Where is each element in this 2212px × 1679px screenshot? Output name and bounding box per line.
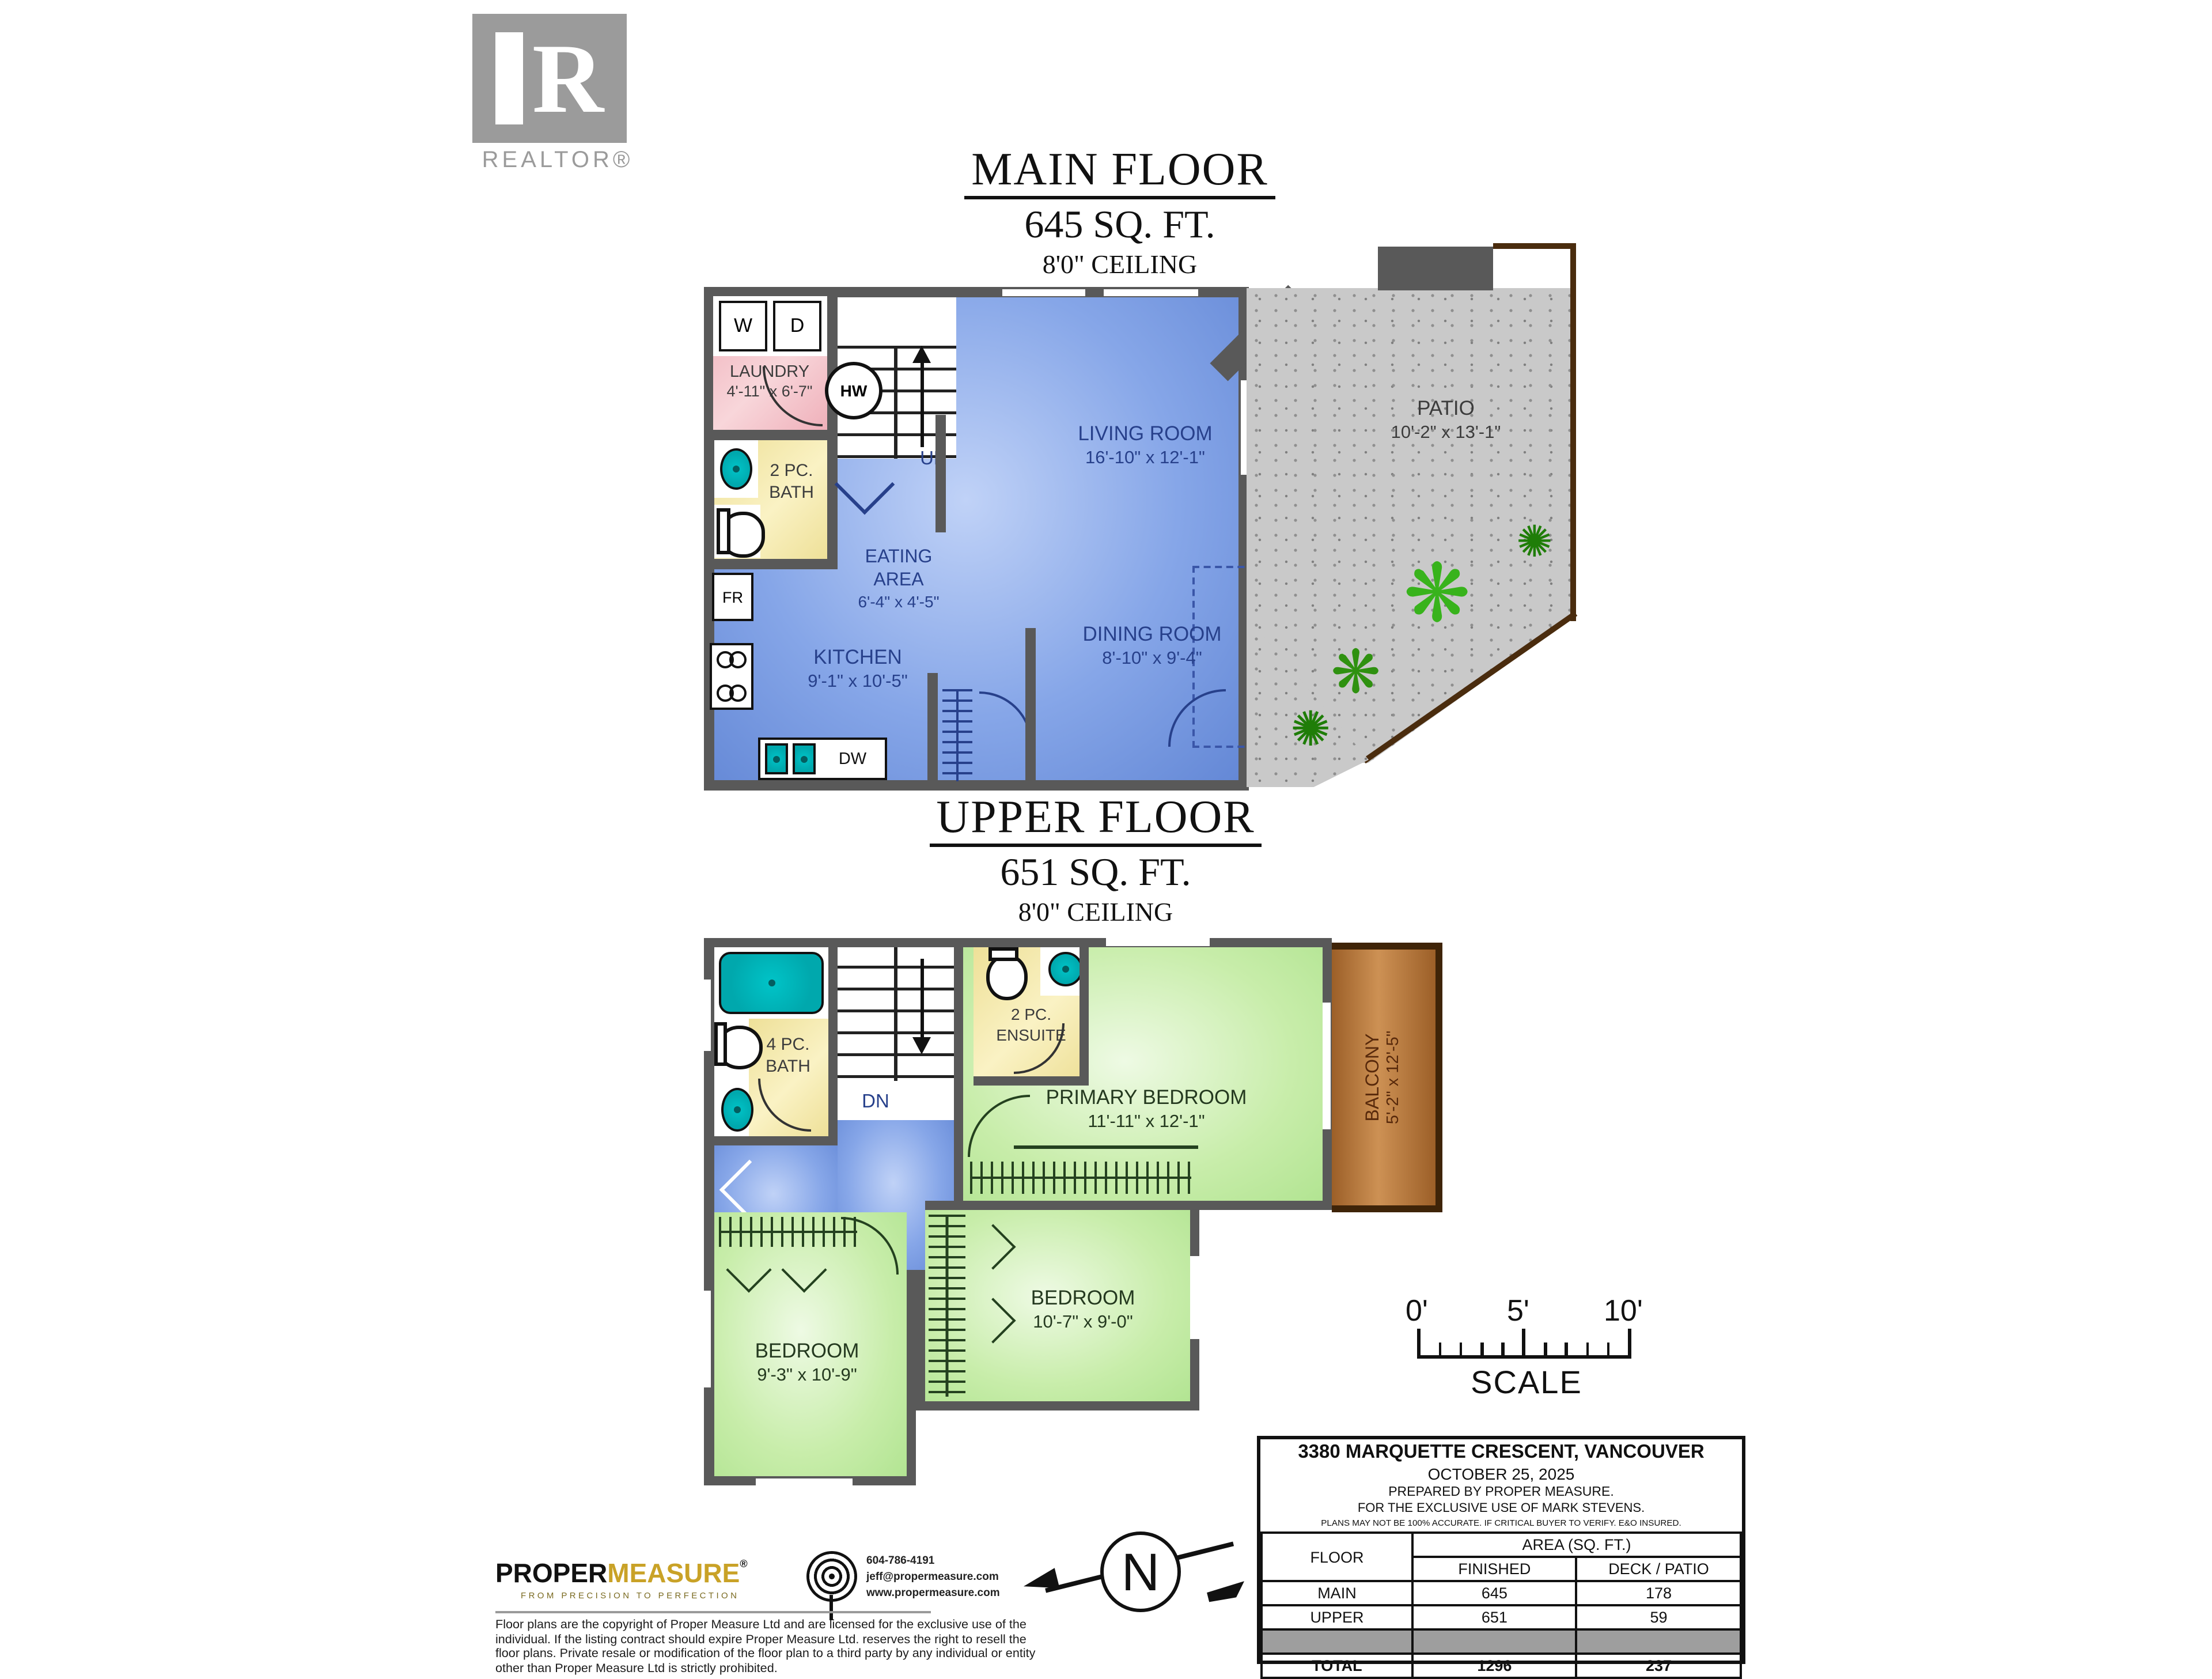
bedroom1-dims: 9'-3" x 10'-9" [712, 1364, 902, 1387]
primary-name: PRIMARY BEDROOM [1025, 1086, 1267, 1111]
primary-bedroom-label: PRIMARY BEDROOM 11'-11" x 12'-1" [1025, 1086, 1267, 1133]
toilet-tank-icon [988, 947, 1018, 961]
balcony: BALCONY 5'-2" x 12'-5" [1332, 943, 1442, 1212]
col-deck: DECK / PATIO [1577, 1557, 1741, 1581]
logo-proper: PROPER [495, 1558, 607, 1588]
logo-registered: ® [740, 1558, 747, 1570]
date: OCTOBER 25, 2025 [1260, 1465, 1742, 1483]
wall [713, 430, 838, 440]
upper-bath-line2: BATH [747, 1057, 829, 1079]
wall [827, 296, 838, 559]
upper-floor-title: UPPER FLOOR 651 SQ. FT. 8'0" CEILING [923, 793, 1268, 928]
dining-name: DINING ROOM [1037, 622, 1267, 648]
kitchen-name: KITCHEN [774, 645, 941, 671]
area-table: FLOOR AREA (SQ. FT.) FINISHED DECK / PAT… [1260, 1531, 1742, 1679]
eating-dims: 6'-4" x 4'-5" [841, 592, 956, 612]
ruler-tick [1438, 1343, 1441, 1355]
main-floor-ceiling: 8'0" CEILING [947, 250, 1293, 280]
cell-deck: 59 [1577, 1605, 1741, 1629]
down-arrow-line [921, 959, 924, 1039]
cell-total-label: TOTAL [1262, 1654, 1412, 1678]
logo-measure: MEASURE [607, 1558, 740, 1588]
website: www.propermeasure.com [866, 1586, 1000, 1602]
living-room-label: LIVING ROOM 16'-10" x 12'-1" [1030, 422, 1260, 470]
main-stairs-divider [894, 346, 897, 459]
ruler-tick [1544, 1343, 1547, 1355]
scale-tick-5: 5' [1507, 1293, 1529, 1329]
dishwasher-label-box: DW [820, 740, 885, 778]
email: jeff@propermeasure.com [866, 1570, 1000, 1586]
up-label: UP [899, 447, 968, 471]
cell-finished: 651 [1412, 1605, 1577, 1629]
window [704, 980, 711, 1051]
col-finished: FINISHED [1412, 1557, 1577, 1581]
propermeasure-logo: PROPERMEASURE® [495, 1558, 748, 1589]
info-box: 3380 MARQUETTE CRESCENT, VANCOUVER OCTOB… [1257, 1436, 1745, 1664]
dn-label: DN [841, 1090, 910, 1114]
toilet-tank-icon [714, 1022, 727, 1066]
dining-room-label: DINING ROOM 8'-10" x 9'-4" [1037, 622, 1267, 670]
realtor-logo-r: R [532, 32, 604, 124]
main-bath-line1: 2 PC. [751, 461, 832, 483]
living-dims: 16'-10" x 12'-1" [1030, 447, 1260, 470]
toilet-tank-icon [717, 508, 730, 554]
realtor-logo-bar [495, 32, 523, 124]
bedroom2-name: BEDROOM [985, 1286, 1181, 1311]
cell-finished: 645 [1412, 1581, 1577, 1605]
upper-bath-line1: 4 PC. [747, 1035, 829, 1057]
living-name: LIVING ROOM [1030, 422, 1260, 447]
col-area: AREA (SQ. FT.) [1412, 1533, 1741, 1557]
exclusive-use: FOR THE EXCLUSIVE USE OF MARK STEVENS. [1260, 1502, 1742, 1515]
upper-floor-area: 651 SQ. FT. [923, 852, 1268, 895]
upper-floor-title-text: UPPER FLOOR [929, 793, 1262, 847]
realtor-logo-icon: R [472, 14, 627, 143]
up-arrow-head [912, 346, 931, 363]
target-icon [806, 1551, 857, 1602]
cell-deck: 178 [1577, 1581, 1741, 1605]
bedroom2-closet-hatch [929, 1215, 965, 1397]
primary-closet-hatch [970, 1162, 1191, 1194]
main-bath-line2: BATH [751, 483, 832, 505]
ruler-tick [1565, 1343, 1568, 1355]
washer-icon: W [719, 301, 767, 351]
down-arrow-head [912, 1037, 931, 1054]
cell-floor: MAIN [1262, 1581, 1412, 1605]
kitchen-sink-icon [793, 743, 816, 774]
north-arrow-tail [1206, 1581, 1248, 1604]
plant-icon: ❋ [1403, 553, 1471, 634]
hw-label: HW [840, 381, 868, 400]
eating-wall-stub [935, 415, 946, 532]
patio-upper-wall [1378, 247, 1493, 290]
plant-icon: ✺ [1516, 521, 1553, 565]
logo-tagline: FROM PRECISION TO PERFECTION [521, 1590, 739, 1601]
north-compass: N [1100, 1531, 1181, 1612]
wall [714, 1136, 838, 1145]
upper-stairs-divider [894, 947, 897, 1081]
washer-label: W [734, 315, 752, 338]
burner-icon [729, 651, 747, 668]
realtor-wordmark: REALTOR® [465, 148, 650, 174]
spacer-cell [1412, 1629, 1577, 1654]
spacer-cell [1577, 1629, 1741, 1654]
patio-fence-right [1570, 243, 1576, 621]
eating-line1: EATING [841, 546, 956, 569]
dryer-label: D [790, 315, 805, 338]
plant-icon: ❋ [1331, 643, 1381, 703]
scale-label: SCALE [1429, 1364, 1624, 1401]
balcony-door-window [1323, 1003, 1331, 1129]
kitchen-sink-icon [765, 743, 788, 774]
north-label: N [1122, 1541, 1160, 1603]
balcony-name: BALCONY [1364, 1031, 1385, 1124]
burner-icon [729, 685, 747, 702]
bathtub-icon [719, 952, 824, 1014]
bedroom1-label: BEDROOM 9'-3" x 10'-9" [712, 1339, 902, 1387]
north-arrow-head [1021, 1568, 1060, 1596]
wall [925, 1201, 1323, 1210]
fridge-icon: FR [712, 573, 753, 621]
up-arrow-line [921, 360, 924, 447]
ruler-tick [1628, 1329, 1631, 1355]
wall [974, 1076, 1089, 1086]
bedroom2-dims: 10'-7" x 9'-0" [985, 1311, 1181, 1334]
spacer-cell [1262, 1629, 1412, 1654]
dining-dims: 8'-10" x 9'-4" [1037, 648, 1267, 670]
eating-area-label: EATING AREA 6'-4" x 4'-5" [841, 546, 956, 612]
scale-tick-0: 0' [1406, 1293, 1428, 1329]
main-floor-title-text: MAIN FLOOR [964, 145, 1275, 199]
main-floor-title: MAIN FLOOR 645 SQ. FT. 8'0" CEILING [947, 145, 1293, 280]
closet-rod-line [1014, 1145, 1198, 1148]
wall [954, 947, 963, 1201]
kitchen-label: KITCHEN 9'-1" x 10'-5" [774, 645, 941, 693]
toilet-icon [986, 954, 1028, 1000]
upper-floor-ceiling: 8'0" CEILING [923, 898, 1268, 928]
window [1190, 1256, 1199, 1339]
table-total-row: TOTAL 1296 237 [1262, 1654, 1741, 1678]
copyright-text: Floor plans are the copyright of Proper … [495, 1618, 1053, 1676]
balcony-label: BALCONY 5'-2" x 12'-5" [1364, 1031, 1403, 1124]
sink-icon [721, 1088, 753, 1132]
footer-divider [495, 1611, 931, 1613]
scale-tick-10: 10' [1604, 1293, 1643, 1329]
bedroom2-label: BEDROOM 10'-7" x 9'-0" [985, 1286, 1181, 1334]
sink-icon [720, 448, 752, 490]
floorplan-page: R REALTOR® MAIN FLOOR 645 SQ. FT. 8'0" C… [0, 0, 2212, 1659]
window [756, 1478, 853, 1485]
cell-total-finished: 1296 [1412, 1654, 1577, 1678]
address: 3380 MARQUETTE CRESCENT, VANCOUVER [1260, 1439, 1742, 1464]
sink-icon [1048, 952, 1083, 986]
stove-icon [710, 643, 753, 710]
contact-block: 604-786-4191 jeff@propermeasure.com www.… [866, 1553, 1000, 1602]
ensuite-line1: 2 PC. [975, 1005, 1088, 1025]
upper-bath-label: 4 PC. BATH [747, 1035, 829, 1078]
ruler-tick [1480, 1343, 1483, 1355]
balcony-dims: 5'-2" x 12'-5" [1385, 1031, 1403, 1124]
fridge-label: FR [722, 588, 743, 606]
ruler-tick [1586, 1343, 1589, 1355]
bedroom1-closet-hatch [719, 1217, 857, 1247]
window [704, 1291, 711, 1387]
patio-dims: 10'-2" x 13'-1" [1336, 422, 1555, 444]
primary-dims: 11'-11" x 12'-1" [1025, 1111, 1267, 1133]
main-bath-label: 2 PC. BATH [751, 461, 832, 504]
prepared-by: PREPARED BY PROPER MEASURE. [1260, 1485, 1742, 1499]
eating-line2: AREA [841, 569, 956, 592]
cell-total-deck: 237 [1577, 1654, 1741, 1678]
bedroom1-name: BEDROOM [712, 1339, 902, 1364]
scale-ruler [1417, 1328, 1631, 1359]
pantry-closet-hatch [942, 689, 972, 781]
ruler-tick [1522, 1329, 1526, 1355]
dining-wall-stub [1025, 628, 1036, 784]
dishwasher-label: DW [839, 750, 866, 768]
kitchen-dims: 9'-1" x 10'-5" [774, 671, 941, 693]
table-spacer-row [1262, 1629, 1741, 1654]
main-floor-area: 645 SQ. FT. [947, 204, 1293, 248]
disclaimer: PLANS MAY NOT BE 100% ACCURATE. IF CRITI… [1260, 1518, 1742, 1528]
patio-fence-top [1493, 243, 1576, 249]
window [1106, 938, 1210, 946]
wall [1080, 947, 1089, 1086]
phone: 604-786-4191 [866, 1553, 1000, 1570]
table-row: UPPER 651 59 [1262, 1605, 1741, 1629]
ruler-tick [1460, 1343, 1463, 1355]
window [1104, 289, 1198, 296]
ruler-tick [1502, 1343, 1505, 1355]
hot-water-tank-icon: HW [825, 362, 882, 419]
patio-name: PATIO [1336, 396, 1555, 422]
cell-floor: UPPER [1262, 1605, 1412, 1629]
table-row: MAIN 645 178 [1262, 1581, 1741, 1605]
plant-icon: ✺ [1290, 705, 1331, 754]
window [1002, 289, 1085, 296]
col-floor: FLOOR [1262, 1533, 1412, 1581]
ruler-tick [1607, 1343, 1609, 1355]
dryer-icon: D [773, 301, 821, 351]
wall [714, 559, 838, 569]
ruler-tick [1417, 1329, 1421, 1355]
patio-label: PATIO 10'-2" x 13'-1" [1336, 396, 1555, 444]
